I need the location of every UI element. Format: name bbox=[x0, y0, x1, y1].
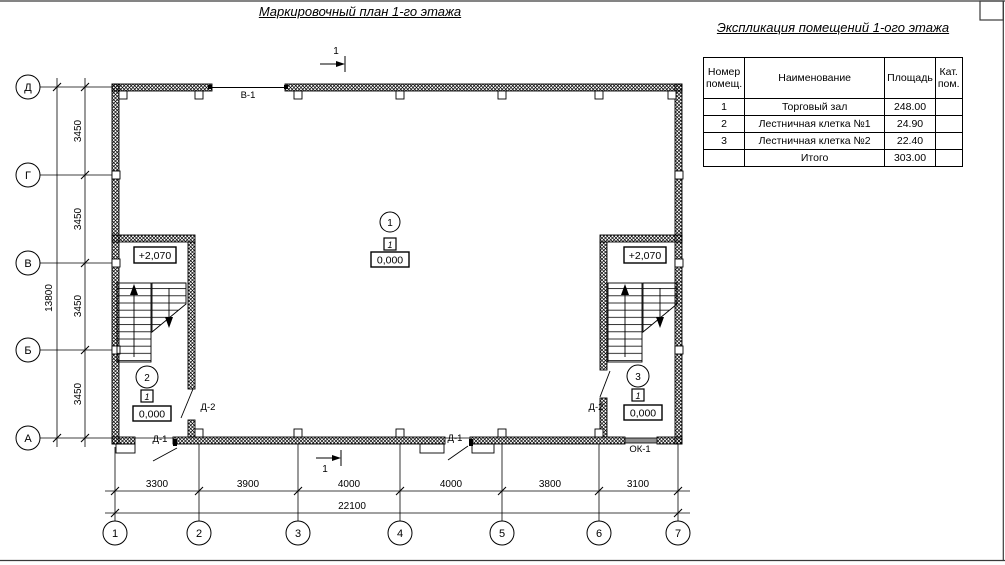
wall-top-right bbox=[285, 84, 682, 91]
door-d1-label: Д-1 bbox=[153, 434, 168, 445]
frame-corner-box bbox=[980, 1, 1003, 20]
dim-text: 3450 bbox=[73, 294, 84, 317]
wall-top-left bbox=[112, 84, 212, 91]
floor-type: 1 bbox=[635, 391, 640, 401]
stairwell-right-partition bbox=[600, 242, 607, 370]
axis-label: 6 bbox=[596, 528, 602, 540]
axis-label: 2 bbox=[196, 528, 202, 540]
dim-text: 3800 bbox=[539, 479, 562, 490]
stairs-right bbox=[608, 283, 677, 362]
arrow-down-head-icon bbox=[165, 317, 173, 328]
openings bbox=[116, 85, 657, 461]
dim-ticks bbox=[111, 487, 682, 517]
axis-label: А bbox=[24, 433, 32, 445]
section-arrow-icon bbox=[332, 455, 341, 461]
dim-text: 4000 bbox=[338, 479, 361, 490]
wall-bottom-1 bbox=[112, 437, 135, 444]
dim-text: 3300 bbox=[146, 479, 169, 490]
gate-jamb bbox=[284, 85, 288, 89]
dim-total-text: 13800 bbox=[44, 284, 55, 312]
axis-label: Г bbox=[25, 170, 31, 182]
section-number: 1 bbox=[333, 46, 339, 57]
door-leaf-d2-right bbox=[600, 371, 610, 397]
porch bbox=[420, 444, 444, 453]
door-leaf-d1-right bbox=[448, 446, 468, 460]
stairwell-left-partition bbox=[188, 242, 195, 389]
stairwell-left-top-wall bbox=[112, 235, 195, 242]
elevation-value: 0,000 bbox=[377, 255, 403, 267]
arrow-down-head-icon bbox=[656, 317, 664, 328]
stairs-left bbox=[117, 283, 186, 362]
room-marker-2: 2 1 0,000 bbox=[133, 366, 171, 421]
door-d2-label: Д-2 bbox=[201, 402, 216, 413]
room-number: 1 bbox=[387, 218, 393, 229]
window-ok1 bbox=[625, 438, 657, 443]
stairwell-right-top-wall bbox=[600, 235, 682, 242]
axis-label: 3 bbox=[295, 528, 301, 540]
porch bbox=[116, 444, 135, 453]
door-leaf-d2-left bbox=[181, 389, 193, 418]
floor-type: 1 bbox=[144, 392, 149, 402]
dimensions-bottom: 3300 3900 4000 4000 3800 3100 22100 bbox=[105, 479, 690, 517]
wall-bottom-2 bbox=[173, 437, 445, 444]
wall-bottom-3 bbox=[470, 437, 625, 444]
floor-plan-drawing: +2,070 +2,070 1 1 0,000 2 1 0,000 3 1 bbox=[0, 0, 1005, 565]
door-jamb bbox=[173, 439, 177, 446]
floor-type: 1 bbox=[387, 240, 392, 250]
dim-text: 4000 bbox=[440, 479, 463, 490]
dim-text: 3100 bbox=[627, 479, 650, 490]
section-mark-top: 1 bbox=[320, 46, 345, 72]
gate-jamb bbox=[208, 85, 212, 89]
room-number: 3 bbox=[635, 372, 641, 383]
axis-label: Д bbox=[24, 82, 32, 94]
dim-text: 3450 bbox=[73, 119, 84, 142]
dim-text: 3450 bbox=[73, 207, 84, 230]
dim-text: 3900 bbox=[237, 479, 260, 490]
axis-label: 7 bbox=[675, 528, 681, 540]
room-marker-1: 1 1 0,000 bbox=[371, 212, 409, 267]
axis-label: 1 bbox=[112, 528, 118, 540]
section-arrow-icon bbox=[336, 61, 345, 67]
axis-label: 4 bbox=[397, 528, 403, 540]
axis-label: 5 bbox=[499, 528, 505, 540]
room-number: 2 bbox=[144, 373, 150, 384]
axis-grid-left: Д Г В Б А bbox=[16, 75, 112, 450]
elevation-value: 0,000 bbox=[630, 408, 656, 420]
level-value: +2,070 bbox=[629, 250, 662, 262]
elevation-value: 0,000 bbox=[139, 409, 165, 421]
section-mark-bottom: 1 bbox=[316, 450, 341, 475]
wall-bottom-4 bbox=[657, 437, 682, 444]
axis-label: Б bbox=[24, 345, 31, 357]
dim-total-text: 22100 bbox=[338, 501, 366, 512]
door-d1-label: Д-1 bbox=[448, 433, 463, 444]
drawing-sheet: Маркировочный план 1-го этажа Экспликаци… bbox=[0, 0, 1005, 565]
opening-labels: В-1 Д-1 Д-1 Д-2 Д-2 ОК-1 bbox=[153, 90, 651, 455]
door-leaf-d1-left bbox=[153, 448, 177, 461]
axis-label: В bbox=[24, 258, 31, 270]
dimensions-left: 3450 3450 3450 3450 13800 bbox=[44, 78, 89, 447]
dim-text: 3450 bbox=[73, 382, 84, 405]
gate-label: В-1 bbox=[241, 90, 256, 101]
stairwell-left-partition-stub bbox=[188, 420, 195, 437]
porch bbox=[472, 444, 494, 453]
section-number: 1 bbox=[322, 464, 328, 475]
door-d2-label: Д-2 bbox=[589, 402, 604, 413]
window-ok1-label: ОК-1 bbox=[629, 444, 650, 455]
room-marker-3: 3 1 0,000 bbox=[624, 365, 662, 420]
level-value: +2,070 bbox=[139, 250, 172, 262]
